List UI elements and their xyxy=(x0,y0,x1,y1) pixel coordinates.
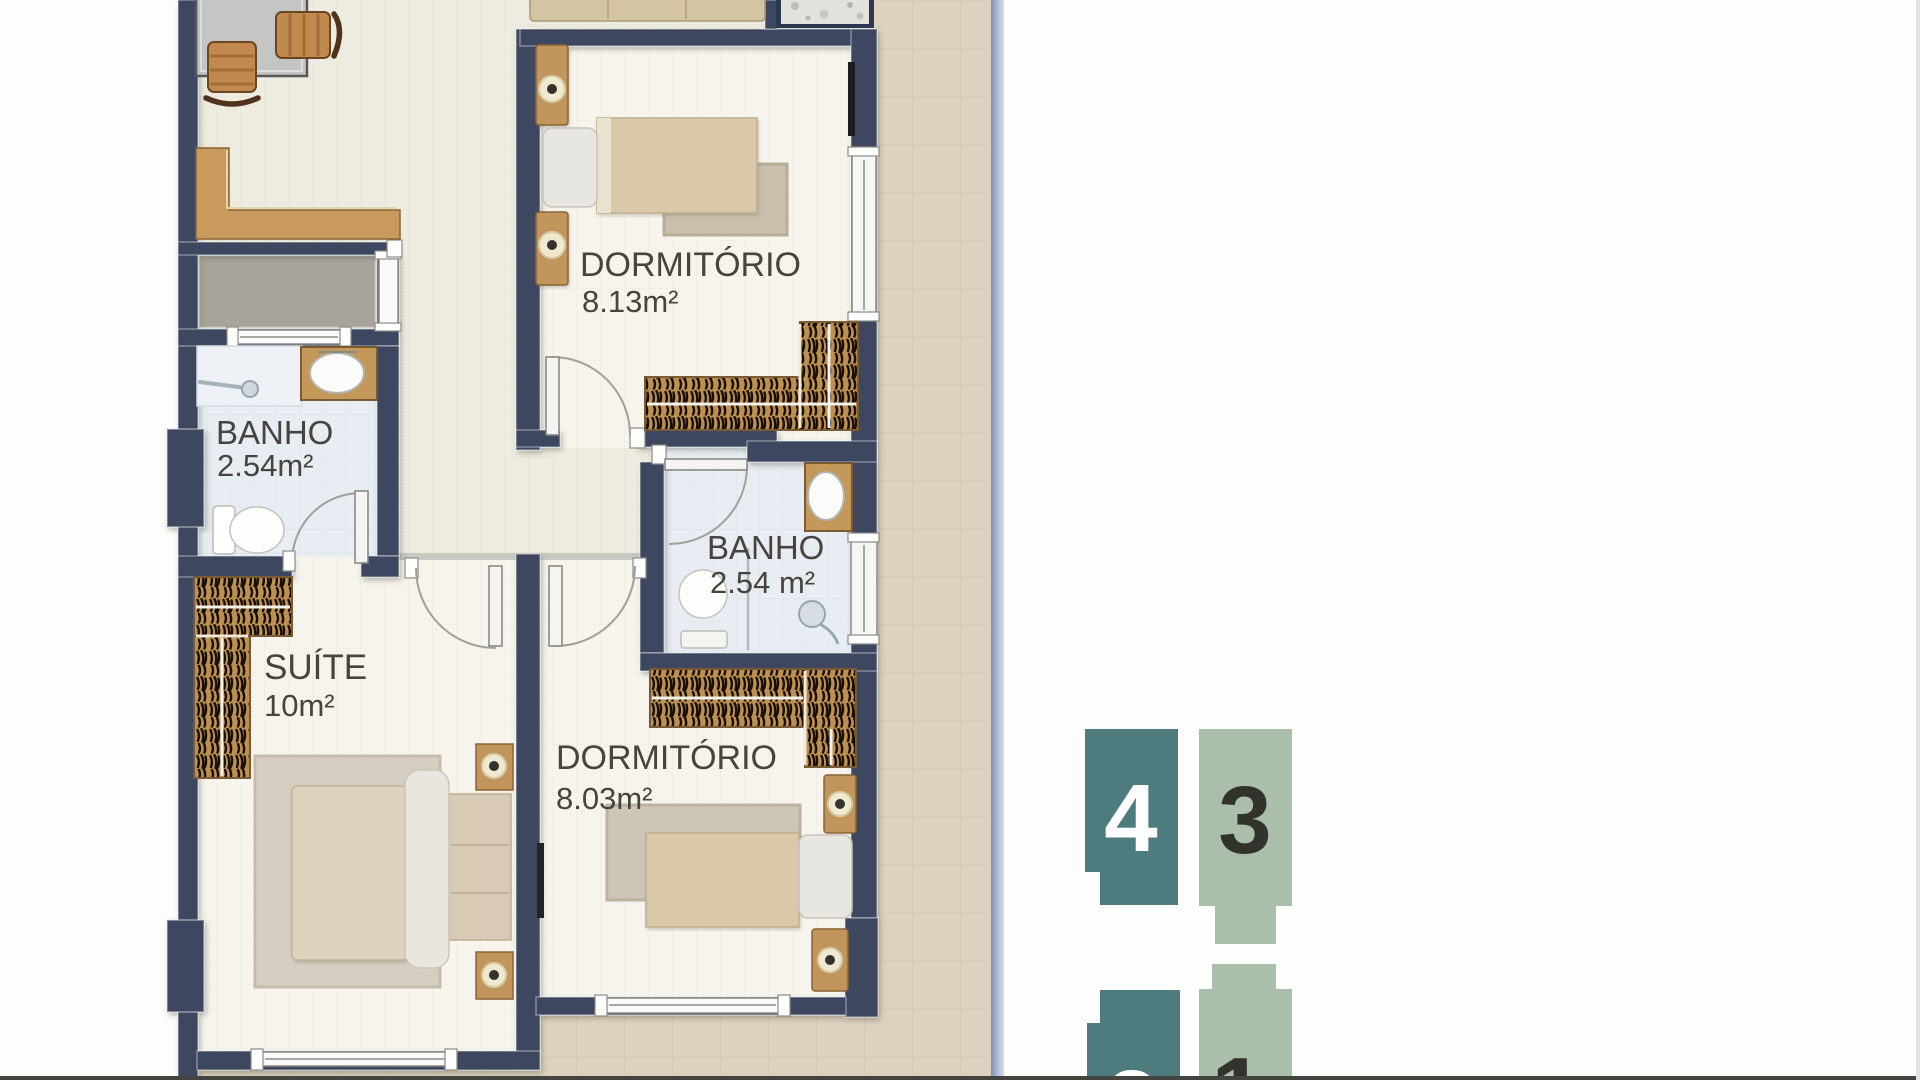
svg-text:SUÍTE: SUÍTE xyxy=(264,648,367,687)
svg-text:BANHO: BANHO xyxy=(707,529,824,566)
svg-text:1: 1 xyxy=(1211,1038,1264,1080)
svg-text:BANHO: BANHO xyxy=(216,414,333,451)
svg-text:10m²: 10m² xyxy=(264,688,335,723)
svg-text:4: 4 xyxy=(1104,765,1157,872)
svg-text:2.54 m²: 2.54 m² xyxy=(710,565,815,600)
svg-text:DORMITÓRIO: DORMITÓRIO xyxy=(556,739,777,777)
svg-text:2.54m²: 2.54m² xyxy=(217,448,313,483)
svg-text:8.13m²: 8.13m² xyxy=(582,284,678,319)
svg-text:2: 2 xyxy=(1105,1051,1158,1080)
svg-text:8.03m²: 8.03m² xyxy=(556,781,652,816)
svg-text:DORMITÓRIO: DORMITÓRIO xyxy=(580,246,801,284)
svg-text:3: 3 xyxy=(1218,767,1271,874)
